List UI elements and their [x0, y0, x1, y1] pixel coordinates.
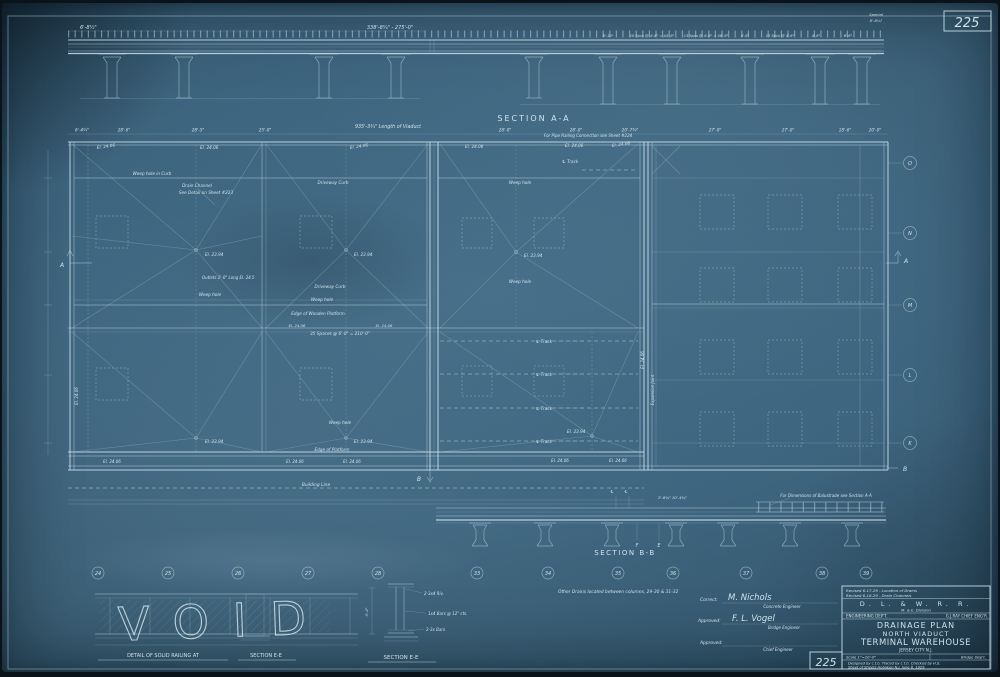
title-block: Revised 6-17-29 - Location of Drains Rev… [810, 586, 990, 670]
sheet-number: 225 [955, 16, 980, 31]
bridge-engineer-label: Bridge Engineer [768, 625, 800, 630]
drawing-title-3: TERMINAL WAREHOUSE [860, 638, 971, 648]
elevation-value: El. 24.06 [74, 387, 79, 405]
drainage-plan-center: ℄ Track Weep hole El. 23.94 Weep hole ℄ … [438, 142, 655, 470]
elevation-value: El. 24.06 [640, 351, 645, 369]
void-stamp-text: VOID [117, 590, 331, 651]
chief-engineer-label: Chief Engineer [763, 647, 793, 652]
driveway-curb-label: Driveway Curb [315, 284, 346, 289]
elev-dim-right: 13 Spcs @ 4'-6" [766, 34, 795, 38]
weep-hole-in-curb-label: Weep hole in Curb [133, 171, 172, 176]
weep-hole-label: Weep hole [329, 420, 352, 425]
elevation-value: El. 24.06 [96, 142, 115, 150]
column-number: 37 [743, 571, 750, 577]
column-number: 36 [670, 571, 676, 577]
viaduct-elevation: 6'-8½" 338'-8¼" - 275'-0" Special 8'-6¼"… [68, 12, 884, 105]
engineering-dept: ENGINEERING DEP'T. [846, 614, 888, 619]
elevation-value: El. 24.06 [551, 458, 569, 463]
approved-signature: F. L. Vogel [732, 614, 775, 624]
elevation-value: El. 24.06 [103, 459, 121, 464]
weep-hole-label: Weep hole [509, 279, 532, 284]
weep-hole-label: Weep hole [199, 292, 222, 297]
elevation-value: El. 23.94 [567, 429, 586, 434]
column-number: 34 [545, 571, 551, 577]
drain-channel-label: Drain Channel [182, 183, 213, 188]
warehouse-plan-right [648, 142, 902, 470]
section-ee-label: SECTION E-E [250, 653, 282, 659]
section-aa-label: SECTION A-A [497, 114, 570, 123]
column-number: 24 [95, 571, 101, 577]
row-letter-circles: O N M L K [904, 157, 917, 450]
railing-detail-title: DETAIL OF SOLID RAILING AT [127, 653, 200, 659]
bridge-dept-label: Bridge Dep't. [961, 655, 986, 660]
drawing-title-4: JERSEY CITY N.J. [898, 648, 933, 653]
elevation-value: El. 23.94 [354, 439, 373, 444]
section-bb-elevation: ℄ ℄ 2'-6¾" 10'-4¾" For Dimensions of Bal… [436, 489, 886, 557]
weep-hole-label: Weep hole [509, 180, 532, 185]
left-dim-ladder [44, 150, 52, 455]
plan-dim: 27'-0" [782, 128, 795, 133]
track-centerline-label: ℄ Track [536, 339, 553, 344]
ee-bars-label-2: 2-3x Bars [426, 627, 445, 632]
edge-wooden-platform-label: Edge of Wooden Platform [291, 311, 344, 316]
section-markers: A A B B [59, 250, 908, 483]
chief-engineer-name: G.J.RAY CHIEF ENG'R. [946, 614, 988, 619]
approved-label-2: Approved: [699, 640, 723, 646]
elev-dim-main: 338'-8¼" - 275'-0" [367, 25, 413, 31]
correct-label: Correct: [700, 597, 718, 603]
spaces-note: 35 Spaces @ 6'-0" = 210'-0" [310, 331, 370, 336]
approved-label: Approved: [697, 618, 721, 624]
blueprint-photo: 6'-8½" 338'-8¼" - 275'-0" Special 8'-6¼"… [0, 0, 1000, 677]
scale-note: Scale 1"=10'-0" [846, 655, 876, 660]
section-a-marker: A [59, 262, 64, 269]
column-number: 28 [375, 571, 381, 577]
balustrade-note: For Dimensions of Balustrade see Section… [780, 493, 872, 498]
general-notes: Other Drains located between columns, 29… [558, 589, 679, 595]
column-number: 38 [819, 571, 825, 577]
edge-platform-label: Edge of Platform [315, 447, 350, 452]
blueprint-drawing: 6'-8½" 338'-8¼" - 275'-0" Special 8'-6¼"… [0, 0, 1000, 677]
title-revision-2: Revised 6-18-29 - Drain Channels [846, 593, 911, 598]
elevation-value: El. 24.06 [200, 145, 219, 150]
elev-dim-right: 4'-6" [741, 34, 750, 38]
row-letter: O [908, 161, 912, 167]
column-section-detail: 2-3x4 Riv. 1x4 Bars @ 12" cts. 2-3x Bars… [364, 584, 468, 662]
section-bb-dim: 2'-6¾" 10'-4¾" [658, 495, 687, 500]
correct-signature: M. Nichols [728, 593, 772, 603]
plan-dim: 28'-0" [499, 128, 512, 133]
row-letter: M [908, 303, 913, 309]
elevation-value: El. 23.94 [524, 253, 543, 258]
sheet-number-box: 225 [944, 11, 991, 31]
signature-block: Correct: M. Nichols Concrete Engineer Ap… [697, 593, 838, 652]
centerline-mark: ℄ [610, 489, 614, 494]
section-ee-label: SECTION E-E [384, 655, 419, 661]
elevation-value: El. 23.94 [354, 252, 373, 257]
weep-hole-label: Weep hole [311, 297, 334, 302]
plan-dim: 28'-6" [118, 128, 131, 133]
marker-e: E [657, 543, 661, 549]
plan-dim: 20'-0" [869, 128, 882, 133]
elevation-value: El. 23.94 [205, 439, 224, 444]
column-number: 25 [165, 571, 171, 577]
row-letter: K [908, 441, 912, 447]
building-line-label: Building Line [302, 482, 331, 488]
plan-dim: 27'-0" [709, 128, 722, 133]
sheet-line: Sheet of Sheets Hoboken N.J. June 6, 192… [848, 666, 925, 670]
concrete-engineer-label: Concrete Engineer [763, 604, 801, 609]
ee-bars-label: 1x4 Bars @ 12" cts. [428, 611, 468, 616]
track-centerline-label: ℄ Track [562, 159, 579, 164]
section-a-marker: A [903, 258, 908, 265]
track-centerline-label: ℄ Track [536, 372, 553, 377]
plan-dim: 28'-0" [570, 128, 583, 133]
driveway-curb-label: Driveway Curb [318, 180, 349, 185]
outlets-note: Outlets 2'-0" Long El. 24.5 [202, 275, 255, 280]
column-number: 33 [474, 571, 480, 577]
drain-channel-note: See Detail on Sheet #223 [179, 190, 234, 195]
elev-dim-right: 13 Spcs @ 4'-6" = 58'-6" [684, 34, 729, 38]
elevation-value: El. 24.06 [565, 143, 584, 148]
elev-dim-right: 4'-6" [812, 34, 821, 38]
elev-dim-right: 6'-6" [844, 34, 853, 38]
column-number-circles: 24 25 26 27 28 33 34 35 36 37 38 39 [92, 567, 872, 579]
track-centerline-label: ℄ Track [536, 406, 553, 411]
elevation-value: El. 24.06 [289, 323, 306, 328]
plan-dim: 6'-4¼" [75, 128, 89, 133]
other-drains-note: Other Drains located between columns, 29… [558, 589, 679, 595]
elev-special-note-2: 8'-6¼" [870, 18, 883, 23]
division-name: M. & E. Division [901, 608, 931, 613]
ee-dim: 3'-4" [364, 607, 369, 616]
column-number: 27 [305, 571, 312, 577]
elevation-value: El. 24.06 [349, 142, 368, 150]
section-b-marker: B [903, 466, 907, 473]
section-bb-label: SECTION B-B [594, 549, 655, 557]
section-b-marker: B [417, 476, 421, 483]
column-number: 26 [235, 571, 241, 577]
building-line-group: Building Line [68, 482, 644, 504]
plan-dim: 25'-0" [259, 128, 272, 133]
row-letter: N [908, 231, 912, 237]
length-note: 935'-3¾" Length of Viaduct [355, 124, 422, 130]
elev-special-note-1: Special [869, 12, 884, 17]
elev-dim-small: 6'-8½" [80, 24, 97, 31]
elevation-value: El. 24.06 [343, 459, 361, 464]
elevation-value: El. 24.06 [609, 458, 627, 463]
column-number: 35 [615, 571, 621, 577]
plan-dim: 20'-7¾" [622, 128, 639, 133]
elev-dim-right: 10 Spcs @ 4'-6" = 44'-6" [630, 34, 675, 38]
row-letter: L [909, 373, 912, 379]
track-centerline-label: ℄ Track [536, 439, 553, 444]
drainage-plan-left: Weep hole in Curb Drain Channel See Deta… [70, 142, 434, 470]
column-number: 39 [863, 571, 869, 577]
plan-dim: 18'-6" [839, 128, 852, 133]
sheet-number-title-block: 225 [816, 656, 837, 669]
drawing-title-1: DRAINAGE PLAN [877, 621, 955, 630]
void-stamp: VOID [117, 590, 331, 651]
plan-dim: 28'-5" [192, 128, 205, 133]
elevation-value: El. 24.06 [376, 323, 393, 328]
elevation-value: El. 24.06 [286, 459, 304, 464]
centerline-mark: ℄ [624, 489, 628, 494]
drawing-title-2: NORTH VIADUCT [882, 630, 949, 638]
ee-rivet-label: 2-3x4 Riv. [424, 591, 444, 596]
section-aa-header: SECTION A-A For Pipe Railing Connection … [68, 114, 888, 150]
elevation-value: El. 23.94 [205, 252, 224, 257]
expansion-joint-label: Expansion Joint [650, 374, 655, 405]
elev-dim-right: 6'-10" [603, 34, 614, 38]
